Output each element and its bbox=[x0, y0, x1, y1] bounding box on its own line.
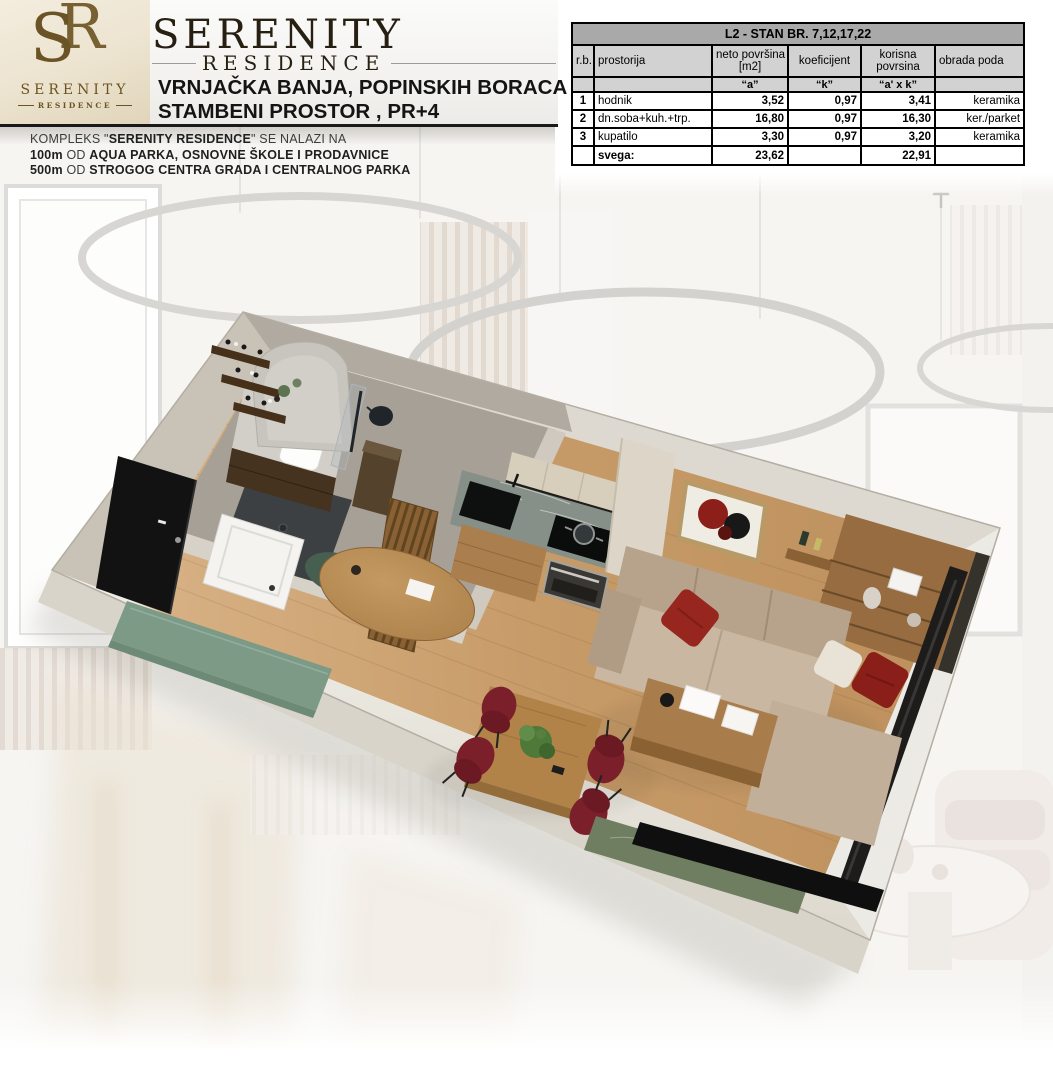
location-line: 100m OD AQUA PARKA, OSNOVNE ŠKOLE I PROD… bbox=[30, 148, 411, 164]
brand-logo: R S SERENITY RESIDENCE bbox=[0, 0, 150, 126]
total-label: svega: bbox=[594, 146, 712, 165]
total-useful: 22,91 bbox=[861, 146, 935, 165]
monogram-letter-s: S bbox=[30, 6, 75, 72]
col-header-room: prostorija bbox=[594, 45, 712, 77]
table-lamp bbox=[660, 693, 674, 707]
page-subtitle: RESIDENCE bbox=[152, 52, 556, 74]
sr-monogram: R S bbox=[0, 0, 150, 76]
col-header-useful: korisna povrsina bbox=[861, 45, 935, 77]
table-subheader-row: “a” “k” “a' x k” bbox=[572, 77, 1024, 92]
shower-head bbox=[369, 406, 393, 426]
door-handle bbox=[175, 537, 181, 543]
col-header-net: neto površina [m2] bbox=[712, 45, 788, 77]
location-line: 500m OD STROGOG CENTRA GRADA I CENTRALNO… bbox=[30, 163, 411, 179]
shower-drain bbox=[279, 524, 287, 532]
logo-subtitle: RESIDENCE bbox=[0, 101, 150, 110]
col-header-rb: r.b. bbox=[572, 45, 594, 77]
table-row: 3 kupatilo 3,30 0,97 3,20 keramika bbox=[572, 128, 1024, 146]
logo-name: SERENITY bbox=[0, 82, 150, 98]
table-row: 1 hodnik 3,52 0,97 3,41 keramika bbox=[572, 92, 1024, 110]
art-red-shape bbox=[698, 499, 728, 529]
divider bbox=[152, 63, 196, 64]
table-total-row: svega: 23,62 22,91 bbox=[572, 146, 1024, 165]
bowl bbox=[907, 613, 921, 627]
col-header-floor: obrada poda bbox=[935, 45, 1024, 77]
subheader-useful: “a' x k” bbox=[861, 77, 935, 92]
header-rule bbox=[0, 124, 558, 127]
door-handle bbox=[269, 585, 275, 591]
divider bbox=[116, 105, 132, 106]
address-line: VRNJAČKA BANJA, POPINSKIH BORACA bbox=[158, 76, 567, 100]
divider bbox=[18, 105, 34, 106]
subheader-net: “a” bbox=[712, 77, 788, 92]
location-line: KOMPLEKS "SERENITY RESIDENCE" SE NALAZI … bbox=[30, 132, 411, 148]
table-title: L2 - STAN BR. 7,12,17,22 bbox=[572, 23, 1024, 45]
col-header-coef: koeficijent bbox=[788, 45, 861, 77]
total-net: 23,62 bbox=[712, 146, 788, 165]
table-row: 2 dn.soba+kuh.+trp. 16,80 0,97 16,30 ker… bbox=[572, 110, 1024, 128]
brochure-page: R S SERENITY RESIDENCE SERENITY RESIDENC… bbox=[0, 0, 1053, 1080]
divider bbox=[391, 63, 556, 64]
table-vase bbox=[351, 565, 361, 575]
apartment-spec-table: L2 - STAN BR. 7,12,17,22 r.b. prostorija… bbox=[571, 22, 1025, 166]
table-title-row: L2 - STAN BR. 7,12,17,22 bbox=[572, 23, 1024, 45]
table-header-row: r.b. prostorija neto površina [m2] koefi… bbox=[572, 45, 1024, 77]
pot bbox=[574, 524, 594, 544]
subheader-coef: “k” bbox=[788, 77, 861, 92]
vase bbox=[863, 587, 881, 609]
property-line: STAMBENI PROSTOR , PR+4 bbox=[158, 100, 439, 124]
location-description: KOMPLEKS "SERENITY RESIDENCE" SE NALAZI … bbox=[30, 132, 411, 179]
